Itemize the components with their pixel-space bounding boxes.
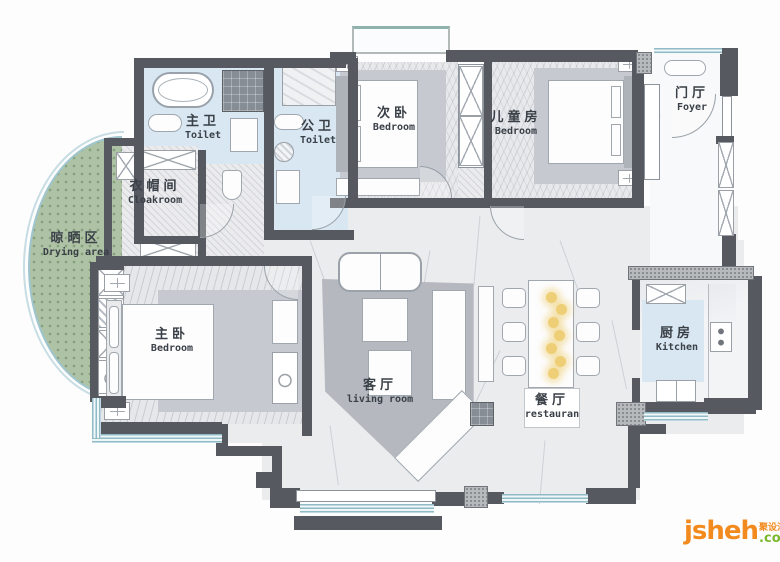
bay-window-top	[352, 26, 450, 54]
wall-pillar	[636, 52, 652, 74]
watermark-tld: .com	[759, 533, 780, 545]
wall-segment	[632, 280, 640, 330]
corridor-floor	[458, 168, 484, 202]
mask	[762, 0, 780, 562]
label-zh: 衣帽间	[128, 180, 182, 195]
shower	[222, 70, 264, 112]
floor-plan: 主卫 Toilet 公卫 Toilet 次卧 Bedroom 儿童房 Bedro…	[0, 0, 780, 562]
wall-segment	[748, 276, 762, 410]
label-zh: 公卫	[300, 120, 336, 135]
sofa	[338, 252, 422, 292]
window-glass	[654, 48, 722, 54]
wall-segment	[636, 402, 712, 412]
label-zh: 主卧	[151, 328, 193, 343]
label-second-bedroom: 次卧 Bedroom	[373, 107, 415, 133]
label-en: Toilet	[185, 130, 221, 142]
wardrobe-cabinet	[140, 150, 196, 170]
wall-segment	[446, 50, 638, 62]
watermark-brand: jsheh	[684, 520, 758, 543]
wall-segment	[90, 262, 98, 402]
window-glass	[92, 398, 101, 438]
mask	[92, 443, 262, 562]
label-zh: 儿童房	[490, 111, 541, 126]
shoe-cabinet	[644, 84, 660, 180]
label-zh: 晾晒区	[43, 232, 109, 247]
dining-chair	[502, 288, 526, 308]
window-glass	[502, 494, 588, 503]
lounge-seat	[432, 290, 466, 400]
label-zh: 客厅	[347, 379, 413, 394]
dining-chair	[576, 322, 600, 342]
stove	[710, 322, 732, 352]
window-column	[718, 190, 734, 236]
window-column	[718, 142, 734, 188]
wall-segment	[348, 58, 358, 206]
wall-segment	[264, 230, 354, 240]
label-en: Kitchen	[656, 342, 698, 354]
coffee-table	[362, 298, 408, 342]
watermark-logo: jsheh 聚设汇 .com	[684, 520, 780, 545]
bathtub	[152, 72, 214, 108]
window-glass	[300, 504, 434, 513]
shower	[282, 66, 336, 106]
round-basin	[274, 142, 294, 162]
mask	[442, 504, 642, 562]
flower-decor	[556, 304, 567, 315]
kitchen-sink	[656, 380, 696, 402]
wardrobe-cabinet	[116, 152, 136, 180]
label-en: Bedroom	[151, 343, 193, 355]
label-drying-area: 晾晒区 Drying area	[43, 232, 109, 258]
flower-decor	[546, 343, 557, 354]
label-en: restauran	[525, 409, 579, 421]
wall-segment	[432, 492, 464, 506]
toilet-wc	[222, 170, 242, 200]
wall-segment	[96, 256, 312, 266]
window-glass	[644, 412, 708, 421]
nightstand	[104, 274, 130, 292]
pillow	[611, 124, 621, 156]
label-zh: 门厅	[675, 87, 709, 102]
wall-segment	[134, 58, 144, 244]
wall-segment	[256, 472, 280, 488]
label-master-bedroom: 主卧 Bedroom	[151, 328, 193, 354]
label-living-room: 客厅 living room	[347, 379, 413, 405]
vanity-cabinet	[230, 118, 258, 152]
headboard	[336, 76, 348, 172]
washbasin	[148, 114, 182, 132]
label-foyer: 门厅 Foyer	[675, 87, 709, 113]
label-en: Bedroom	[490, 126, 541, 138]
label-public-toilet: 公卫 Toilet	[300, 120, 336, 146]
wall-segment	[586, 488, 636, 504]
window-sill	[296, 490, 436, 502]
wall-segment	[632, 52, 644, 206]
label-en: Drying area	[43, 247, 109, 259]
dining-chair	[576, 356, 600, 376]
wall-segment	[134, 236, 198, 244]
vanity-cabinet	[276, 170, 300, 204]
wall-segment	[134, 58, 346, 68]
closet	[459, 116, 483, 166]
label-dining-room: 餐厅 restauran	[525, 394, 579, 420]
label-en: Bedroom	[373, 122, 415, 134]
pillow	[611, 86, 621, 118]
wall-pillar	[616, 402, 646, 426]
label-zh: 主卫	[185, 115, 221, 130]
flower-decor	[548, 368, 559, 379]
closet	[459, 66, 483, 116]
wall-segment	[96, 422, 222, 434]
bench	[664, 60, 706, 76]
wall-segment	[628, 430, 640, 488]
wall-segment	[264, 58, 274, 238]
label-cloakroom: 衣帽间 Cloakroom	[128, 180, 182, 206]
label-master-toilet: 主卫 Toilet	[185, 115, 221, 141]
flower-decor	[546, 292, 557, 303]
wall-segment	[722, 234, 736, 270]
flower-decor	[555, 356, 566, 367]
wall-segment	[720, 48, 738, 96]
tv-stand	[478, 286, 494, 382]
dining-chair	[502, 356, 526, 376]
dining-chair	[576, 288, 600, 308]
pillow	[109, 352, 119, 394]
kitchen-cabinet	[646, 284, 686, 304]
label-zh: 厨房	[656, 327, 698, 342]
dresser	[272, 352, 298, 404]
wall-segment	[294, 516, 442, 530]
label-en: Foyer	[675, 102, 709, 114]
flower-decor	[554, 330, 565, 341]
label-children-room: 儿童房 Bedroom	[490, 111, 541, 137]
label-en: Toilet	[300, 135, 336, 147]
wall-segment	[302, 256, 312, 436]
dining-chair	[502, 322, 526, 342]
label-en: living room	[347, 394, 413, 406]
window-glass	[92, 434, 222, 443]
label-zh: 次卧	[373, 107, 415, 122]
wall-pillar	[464, 486, 488, 508]
speaker	[470, 402, 494, 426]
label-kitchen: 厨房 Kitchen	[656, 327, 698, 353]
wall-segment	[330, 198, 464, 208]
label-zh: 餐厅	[525, 394, 579, 409]
wardrobe	[272, 300, 298, 344]
wall-segment	[104, 138, 144, 146]
wall-pillar	[628, 266, 754, 280]
label-en: Cloakroom	[128, 195, 182, 207]
pillow	[109, 306, 119, 348]
flower-decor	[548, 317, 559, 328]
